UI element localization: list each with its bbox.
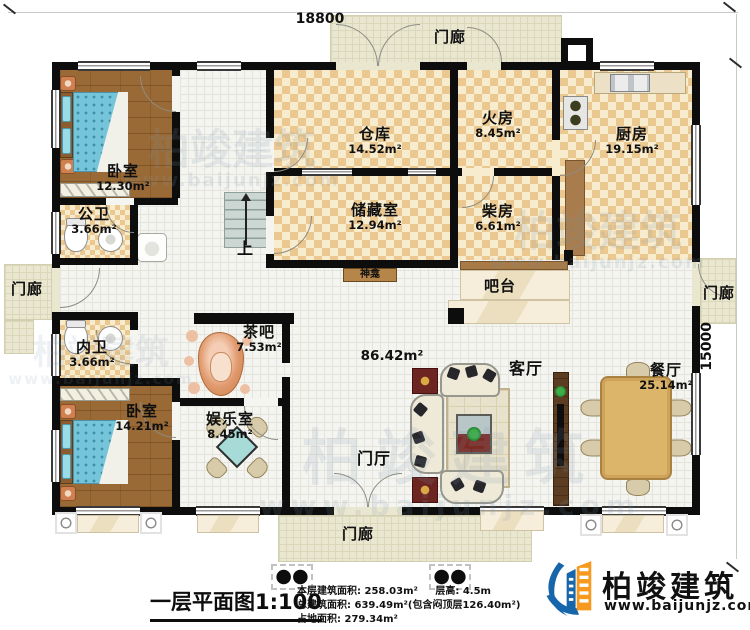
porch-label-right: 门廊 [694, 285, 744, 302]
door-opening [106, 198, 134, 205]
column [666, 514, 688, 536]
room-label-private-bath: 内卫 3.66m² [56, 339, 128, 369]
hall-area-label: 86.42m² [350, 349, 434, 364]
bed-pillow [62, 424, 71, 449]
door-opening [467, 62, 501, 70]
pass-through [408, 168, 436, 176]
room-label-living: 客厅 [502, 360, 550, 378]
room-label-foyer: 门厅 [346, 450, 402, 468]
room-label-bar: 吧台 [476, 278, 524, 295]
stats-line-3: 占地面积: 279.34m² [297, 610, 398, 625]
red-mat [412, 368, 438, 394]
room-label-fire-room: 火房 8.45m² [455, 110, 541, 140]
wall [52, 378, 180, 386]
room-label-storage: 储藏室 12.94m² [322, 202, 428, 232]
column [55, 512, 77, 534]
wall [282, 377, 290, 515]
window [51, 430, 61, 482]
room-label-bedroom2: 卧室 14.21m² [100, 403, 184, 433]
dim-line-top [8, 12, 738, 13]
door-opening [334, 507, 402, 515]
kitchen-sink [610, 74, 650, 92]
stats-line-2: 总建筑面积: 639.49m²(包含闷顶层126.40m²) [297, 596, 520, 611]
chimney [561, 38, 593, 68]
bed-pillow [62, 454, 71, 479]
porch-label-top: 门廊 [422, 29, 478, 46]
room-label-dining: 餐厅 25.14m² [628, 362, 704, 392]
window-sill [197, 515, 259, 533]
bar-post [448, 308, 464, 324]
door-opening [462, 168, 494, 176]
tea-lounge-cushion [210, 352, 232, 382]
tea-bubble [188, 382, 200, 394]
bed-blanket [95, 92, 128, 172]
tea-bubble [240, 384, 250, 394]
toilet-tank [66, 320, 86, 328]
bed-pillow [62, 96, 71, 122]
window [51, 90, 61, 148]
window [600, 61, 654, 71]
pass-through [302, 168, 352, 176]
dining-chair [626, 479, 650, 496]
door-opening [130, 330, 138, 364]
door-opening [52, 268, 60, 312]
room-label-entertainment: 娱乐室 8.45m² [186, 411, 274, 441]
bar-counter [448, 300, 570, 324]
bed-pillow [62, 128, 71, 154]
tea-bubble [184, 356, 194, 366]
brand-logo-icon [542, 556, 598, 620]
porch-left-step [4, 320, 34, 354]
nightstand [60, 76, 76, 91]
column [580, 514, 602, 536]
nightstand [60, 486, 76, 501]
room-label-warehouse: 仓库 14.52m² [328, 126, 422, 156]
room-label-public-bath: 公卫 3.66m² [58, 206, 130, 236]
stove [563, 96, 588, 130]
window [78, 61, 150, 71]
nightstand [60, 404, 76, 419]
window-sill [77, 515, 139, 533]
porch-label-left: 门廊 [2, 281, 52, 298]
door-opening [552, 140, 560, 176]
tv [557, 404, 564, 466]
dimension-width: 18800 [288, 12, 352, 28]
sofa-bottom [440, 470, 504, 504]
door-opening [266, 216, 274, 254]
room-label-shrine: 神龛 [343, 269, 397, 280]
door-opening [244, 398, 278, 406]
room-label-tea-bar: 茶吧 7.53m² [222, 324, 296, 354]
red-mat [412, 477, 438, 503]
tea-bubble [186, 330, 198, 342]
stairs-up-label: 上 [233, 240, 257, 258]
bar-shelf [460, 261, 568, 270]
window [197, 61, 241, 71]
door-opening [266, 138, 274, 172]
washer [137, 233, 167, 262]
plant [467, 427, 481, 441]
wall [266, 260, 456, 268]
stairs-arrow-head [241, 193, 251, 201]
floor-plan: 18800 15000 [0, 0, 750, 630]
wall [52, 312, 138, 320]
room-label-bedroom1: 卧室 12.30m² [78, 163, 168, 193]
room-label-firewood: 柴房 6.61m² [455, 203, 541, 233]
brand-website: www.baijunjz.com [604, 598, 750, 614]
window-sill [480, 511, 544, 531]
dim-tick [723, 2, 736, 13]
window [691, 125, 701, 205]
plan-title-text: 一层平面图 [150, 590, 255, 614]
room-label-kitchen: 厨房 19.15m² [588, 126, 676, 156]
wardrobe [60, 388, 130, 401]
plant [555, 386, 566, 397]
window-sill [602, 515, 664, 533]
column [140, 512, 162, 534]
porch-label-bottom: 门廊 [330, 526, 386, 543]
wall [52, 258, 138, 265]
stats-line-1: 本层建筑面积: 258.03m² 层高: 4.5m [297, 582, 491, 597]
wall [450, 70, 458, 268]
